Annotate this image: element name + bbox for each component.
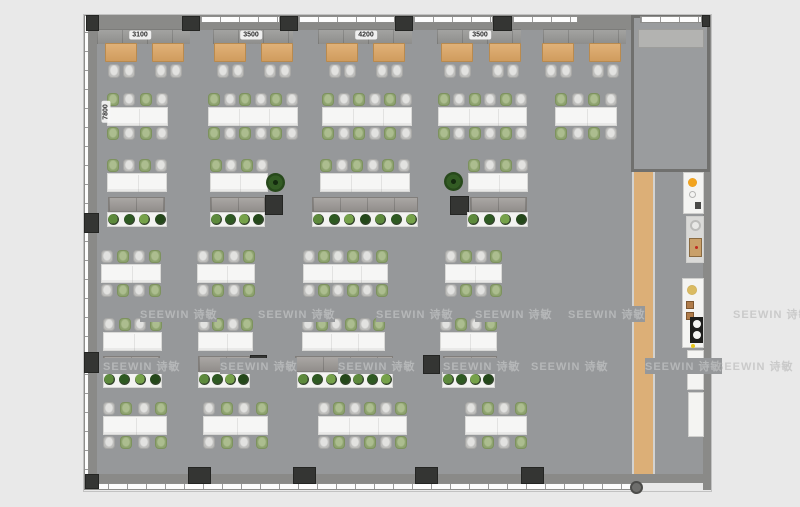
plant — [238, 374, 249, 385]
chair — [560, 64, 572, 78]
chair — [438, 93, 450, 106]
structural-column — [280, 16, 298, 31]
desk-seam — [269, 109, 270, 126]
chair — [455, 318, 467, 331]
structural-column — [702, 15, 710, 27]
desk — [101, 264, 161, 283]
desk — [438, 107, 527, 126]
chair — [120, 402, 132, 415]
left-window-strip — [84, 15, 89, 490]
structural-column — [182, 16, 200, 31]
chair — [212, 284, 224, 297]
desk-seam — [378, 418, 379, 435]
burner-icon — [693, 331, 701, 339]
chair — [460, 284, 472, 297]
desk-seam — [361, 266, 362, 283]
dimension-label: 3100 — [129, 31, 151, 40]
chair — [380, 436, 392, 449]
plant — [484, 214, 495, 225]
chair — [119, 318, 131, 331]
chair — [347, 250, 359, 263]
watermark: SEEWIN 诗敏 — [733, 306, 800, 322]
chair — [224, 93, 236, 106]
plant — [253, 214, 264, 225]
chair — [170, 64, 182, 78]
plant — [329, 214, 340, 225]
chair — [107, 159, 119, 172]
chair — [279, 64, 291, 78]
chair — [588, 127, 600, 140]
paper-roll-icon — [690, 220, 701, 231]
chair — [107, 127, 119, 140]
plant — [139, 214, 150, 225]
chair — [484, 159, 496, 172]
plant — [344, 214, 355, 225]
chair — [376, 250, 388, 263]
chair — [232, 64, 244, 78]
chair — [460, 250, 472, 263]
chair — [225, 159, 237, 172]
chair — [445, 284, 457, 297]
plant — [124, 214, 135, 225]
plant — [135, 374, 146, 385]
chair — [228, 250, 240, 263]
chair — [588, 93, 600, 106]
chair — [155, 402, 167, 415]
chair — [572, 93, 584, 106]
chair — [156, 127, 168, 140]
chair — [208, 127, 220, 140]
chair — [572, 127, 584, 140]
plant — [150, 374, 161, 385]
chair — [123, 159, 135, 172]
chair — [333, 436, 345, 449]
sink-fixture — [682, 278, 704, 348]
chair — [400, 127, 412, 140]
chair — [108, 64, 120, 78]
desk-seam — [497, 418, 498, 435]
plant — [155, 214, 166, 225]
plant — [483, 374, 494, 385]
chair — [320, 159, 332, 172]
wood-table — [214, 43, 246, 62]
desk-seam — [132, 266, 133, 283]
watermark: SEEWIN 诗敏 — [568, 306, 645, 322]
chair — [482, 436, 494, 449]
chair — [120, 436, 132, 449]
structural-column — [85, 474, 99, 489]
plant — [500, 214, 511, 225]
chair — [103, 318, 115, 331]
bottom-wall — [84, 474, 711, 483]
plant — [391, 214, 402, 225]
chair — [469, 93, 481, 106]
chair — [555, 93, 567, 106]
chair — [469, 127, 481, 140]
plant — [443, 374, 454, 385]
structural-column — [84, 213, 99, 233]
storage-cabinet — [108, 197, 165, 212]
wood-floor-strip — [632, 172, 655, 474]
desk — [103, 416, 167, 435]
chair — [338, 93, 350, 106]
desk — [303, 264, 388, 283]
structural-column — [493, 16, 512, 31]
chair — [101, 284, 113, 297]
wood-table — [261, 43, 293, 62]
chair — [241, 318, 253, 331]
desk — [197, 264, 255, 283]
chair — [228, 284, 240, 297]
chair — [395, 402, 407, 415]
desk-seam — [499, 175, 500, 192]
watermark: SEEWIN 诗敏 — [140, 306, 217, 322]
chair — [398, 159, 410, 172]
desk — [440, 332, 497, 351]
chair — [498, 402, 510, 415]
desk — [103, 332, 162, 351]
coffee-machine-icon — [689, 238, 702, 257]
chair — [156, 93, 168, 106]
speaker-icon — [695, 202, 701, 209]
desk — [468, 173, 528, 192]
desk-seam — [227, 266, 228, 283]
coffee-fixture — [686, 216, 704, 263]
plant — [225, 214, 236, 225]
chair — [369, 127, 381, 140]
plant — [104, 374, 115, 385]
desk-seam — [239, 109, 240, 126]
top-window — [298, 16, 395, 23]
watermark: SEEWIN 诗敏 — [338, 358, 415, 374]
plant — [119, 374, 130, 385]
desk — [198, 332, 253, 351]
chair — [605, 127, 617, 140]
watermark: SEEWIN 诗敏 — [376, 306, 453, 322]
chair — [361, 284, 373, 297]
desk-seam — [498, 109, 499, 126]
chair — [400, 93, 412, 106]
plant — [381, 374, 392, 385]
service-fixture — [683, 172, 704, 214]
chair — [318, 250, 330, 263]
chair — [332, 284, 344, 297]
chair — [197, 250, 209, 263]
desk — [208, 107, 298, 126]
chair — [349, 436, 361, 449]
chair — [103, 436, 115, 449]
chair — [500, 159, 512, 172]
chair — [318, 436, 330, 449]
chair — [227, 318, 239, 331]
watermark: SEEWIN 诗敏 — [220, 358, 297, 374]
dimension-label: 3500 — [240, 31, 262, 40]
desk-seam — [349, 418, 350, 435]
desk-seam — [240, 175, 241, 192]
chair — [217, 64, 229, 78]
chair — [444, 64, 456, 78]
chair — [500, 127, 512, 140]
chair — [333, 402, 345, 415]
chair — [318, 402, 330, 415]
desk-seam — [227, 334, 228, 351]
chair — [515, 436, 527, 449]
water-dispenser-icon — [688, 178, 697, 187]
chair — [490, 284, 502, 297]
dimension-label: 4200 — [355, 31, 377, 40]
watermark: SEEWIN 诗敏 — [531, 358, 608, 374]
chair — [349, 402, 361, 415]
storage-cabinet — [470, 197, 527, 212]
chair — [359, 318, 371, 331]
desk-seam — [332, 266, 333, 283]
chair — [338, 127, 350, 140]
chair — [133, 250, 145, 263]
structural-column — [188, 467, 211, 484]
structural-column — [86, 15, 99, 31]
chair — [376, 64, 388, 78]
plant — [468, 214, 479, 225]
desk-seam — [587, 109, 588, 126]
watermark: SEEWIN 诗敏 — [475, 306, 552, 322]
chair — [515, 93, 527, 106]
chair — [239, 127, 251, 140]
chair — [149, 250, 161, 263]
structural-column — [265, 195, 283, 215]
tap-icon — [686, 301, 694, 309]
wood-table — [589, 43, 621, 62]
chair — [255, 93, 267, 106]
plant — [326, 374, 337, 385]
chair — [210, 159, 222, 172]
chair — [380, 402, 392, 415]
chair — [555, 127, 567, 140]
chair — [133, 284, 145, 297]
chair — [482, 402, 494, 415]
chair — [155, 159, 167, 172]
top-window — [413, 16, 493, 23]
watermark: SEEWIN 诗敏 — [258, 306, 335, 322]
chair — [453, 127, 465, 140]
round-column — [630, 481, 643, 494]
watermark: SEEWIN 诗敏 — [645, 358, 722, 374]
desk-seam — [383, 109, 384, 126]
chair — [208, 93, 220, 106]
chair — [322, 127, 334, 140]
plant — [313, 214, 324, 225]
desk-seam — [138, 175, 139, 192]
chair — [369, 93, 381, 106]
chair — [453, 93, 465, 106]
top-window — [512, 16, 578, 23]
desk-seam — [353, 109, 354, 126]
dimension-label: 3500 — [469, 31, 491, 40]
plant — [456, 374, 467, 385]
chair — [376, 284, 388, 297]
desk — [210, 173, 268, 192]
chair — [139, 159, 151, 172]
chair — [224, 127, 236, 140]
desk-seam — [351, 175, 352, 192]
chair — [270, 93, 282, 106]
dimension-label: 7800 — [102, 101, 111, 123]
chair — [203, 402, 215, 415]
wood-table — [326, 43, 358, 62]
desk-seam — [358, 334, 359, 351]
chair — [351, 159, 363, 172]
structural-column — [395, 16, 413, 31]
chair — [318, 284, 330, 297]
plant — [225, 374, 236, 385]
chair — [329, 64, 341, 78]
chair — [332, 250, 344, 263]
chair — [256, 159, 268, 172]
wood-table — [152, 43, 184, 62]
plant — [212, 374, 223, 385]
chair — [270, 127, 282, 140]
chair — [367, 159, 379, 172]
desk-seam — [331, 334, 332, 351]
desk — [302, 332, 385, 351]
chair — [286, 93, 298, 106]
chair — [255, 127, 267, 140]
floor-plan-image: 31003500420035007800SEEWIN 诗敏SEEWIN 诗敏SE… — [0, 0, 800, 507]
chair — [256, 402, 268, 415]
structural-column — [423, 355, 440, 374]
chair — [515, 402, 527, 415]
watermark: SEEWIN 诗敏 — [716, 358, 793, 374]
plant — [340, 374, 351, 385]
storage-cabinet — [210, 197, 265, 212]
wood-table — [373, 43, 405, 62]
chair — [322, 93, 334, 106]
chair — [384, 127, 396, 140]
wood-table — [105, 43, 137, 62]
plant — [470, 374, 481, 385]
chair — [391, 64, 403, 78]
plant — [516, 214, 527, 225]
desk — [203, 416, 268, 435]
chair — [256, 436, 268, 449]
chair — [117, 250, 129, 263]
chair — [465, 436, 477, 449]
chair — [445, 250, 457, 263]
plant — [108, 214, 119, 225]
burner-icon — [693, 320, 701, 328]
watermark: SEEWIN 诗敏 — [103, 358, 180, 374]
desk — [465, 416, 527, 435]
chair — [484, 127, 496, 140]
chair — [243, 284, 255, 297]
chair — [155, 64, 167, 78]
chair — [607, 64, 619, 78]
chair — [361, 250, 373, 263]
counter-fixture — [688, 392, 704, 437]
top-window — [200, 16, 280, 23]
chair — [515, 127, 527, 140]
plant — [199, 374, 210, 385]
plant — [360, 214, 371, 225]
meeting-room-cabinet — [638, 29, 704, 48]
chair — [347, 284, 359, 297]
chair — [303, 250, 315, 263]
desk-seam — [381, 175, 382, 192]
chair — [286, 127, 298, 140]
plant — [211, 214, 222, 225]
cup-icon — [689, 191, 696, 198]
chair — [123, 64, 135, 78]
chair — [336, 159, 348, 172]
storage-cabinet — [312, 197, 418, 212]
chair — [516, 159, 528, 172]
wall-cabinet — [543, 29, 626, 44]
chair — [303, 284, 315, 297]
chair — [498, 436, 510, 449]
chair — [238, 436, 250, 449]
chair — [364, 402, 376, 415]
chair — [492, 64, 504, 78]
chair — [364, 436, 376, 449]
desk — [445, 264, 502, 283]
chair — [149, 284, 161, 297]
top-window — [640, 16, 702, 23]
plant — [298, 374, 309, 385]
warning-dot — [691, 344, 695, 348]
desk-seam — [475, 266, 476, 283]
desk-seam — [134, 334, 135, 351]
chair — [438, 127, 450, 140]
chair — [459, 64, 471, 78]
chair — [545, 64, 557, 78]
chair — [140, 127, 152, 140]
chair — [395, 436, 407, 449]
chair — [212, 250, 224, 263]
chair — [465, 402, 477, 415]
chair — [138, 436, 150, 449]
chair — [221, 436, 233, 449]
chair — [484, 93, 496, 106]
chair — [475, 250, 487, 263]
chair — [238, 402, 250, 415]
desk — [322, 107, 412, 126]
desk — [107, 173, 167, 192]
wood-table — [489, 43, 521, 62]
chair — [507, 64, 519, 78]
chair — [241, 159, 253, 172]
chair — [138, 402, 150, 415]
chair — [203, 436, 215, 449]
power-led — [695, 246, 698, 249]
desk — [107, 107, 168, 126]
chair — [353, 127, 365, 140]
plant — [312, 374, 323, 385]
chair — [344, 64, 356, 78]
chair — [221, 402, 233, 415]
watermark: SEEWIN 诗敏 — [443, 358, 520, 374]
chair — [123, 93, 135, 106]
plant — [367, 374, 378, 385]
chair — [197, 284, 209, 297]
chair — [101, 250, 113, 263]
chair — [592, 64, 604, 78]
chair — [123, 127, 135, 140]
bottom-window-strip — [88, 483, 633, 490]
wood-table — [441, 43, 473, 62]
wood-table — [542, 43, 574, 62]
structural-column — [521, 467, 544, 484]
plant — [375, 214, 386, 225]
chair — [382, 159, 394, 172]
